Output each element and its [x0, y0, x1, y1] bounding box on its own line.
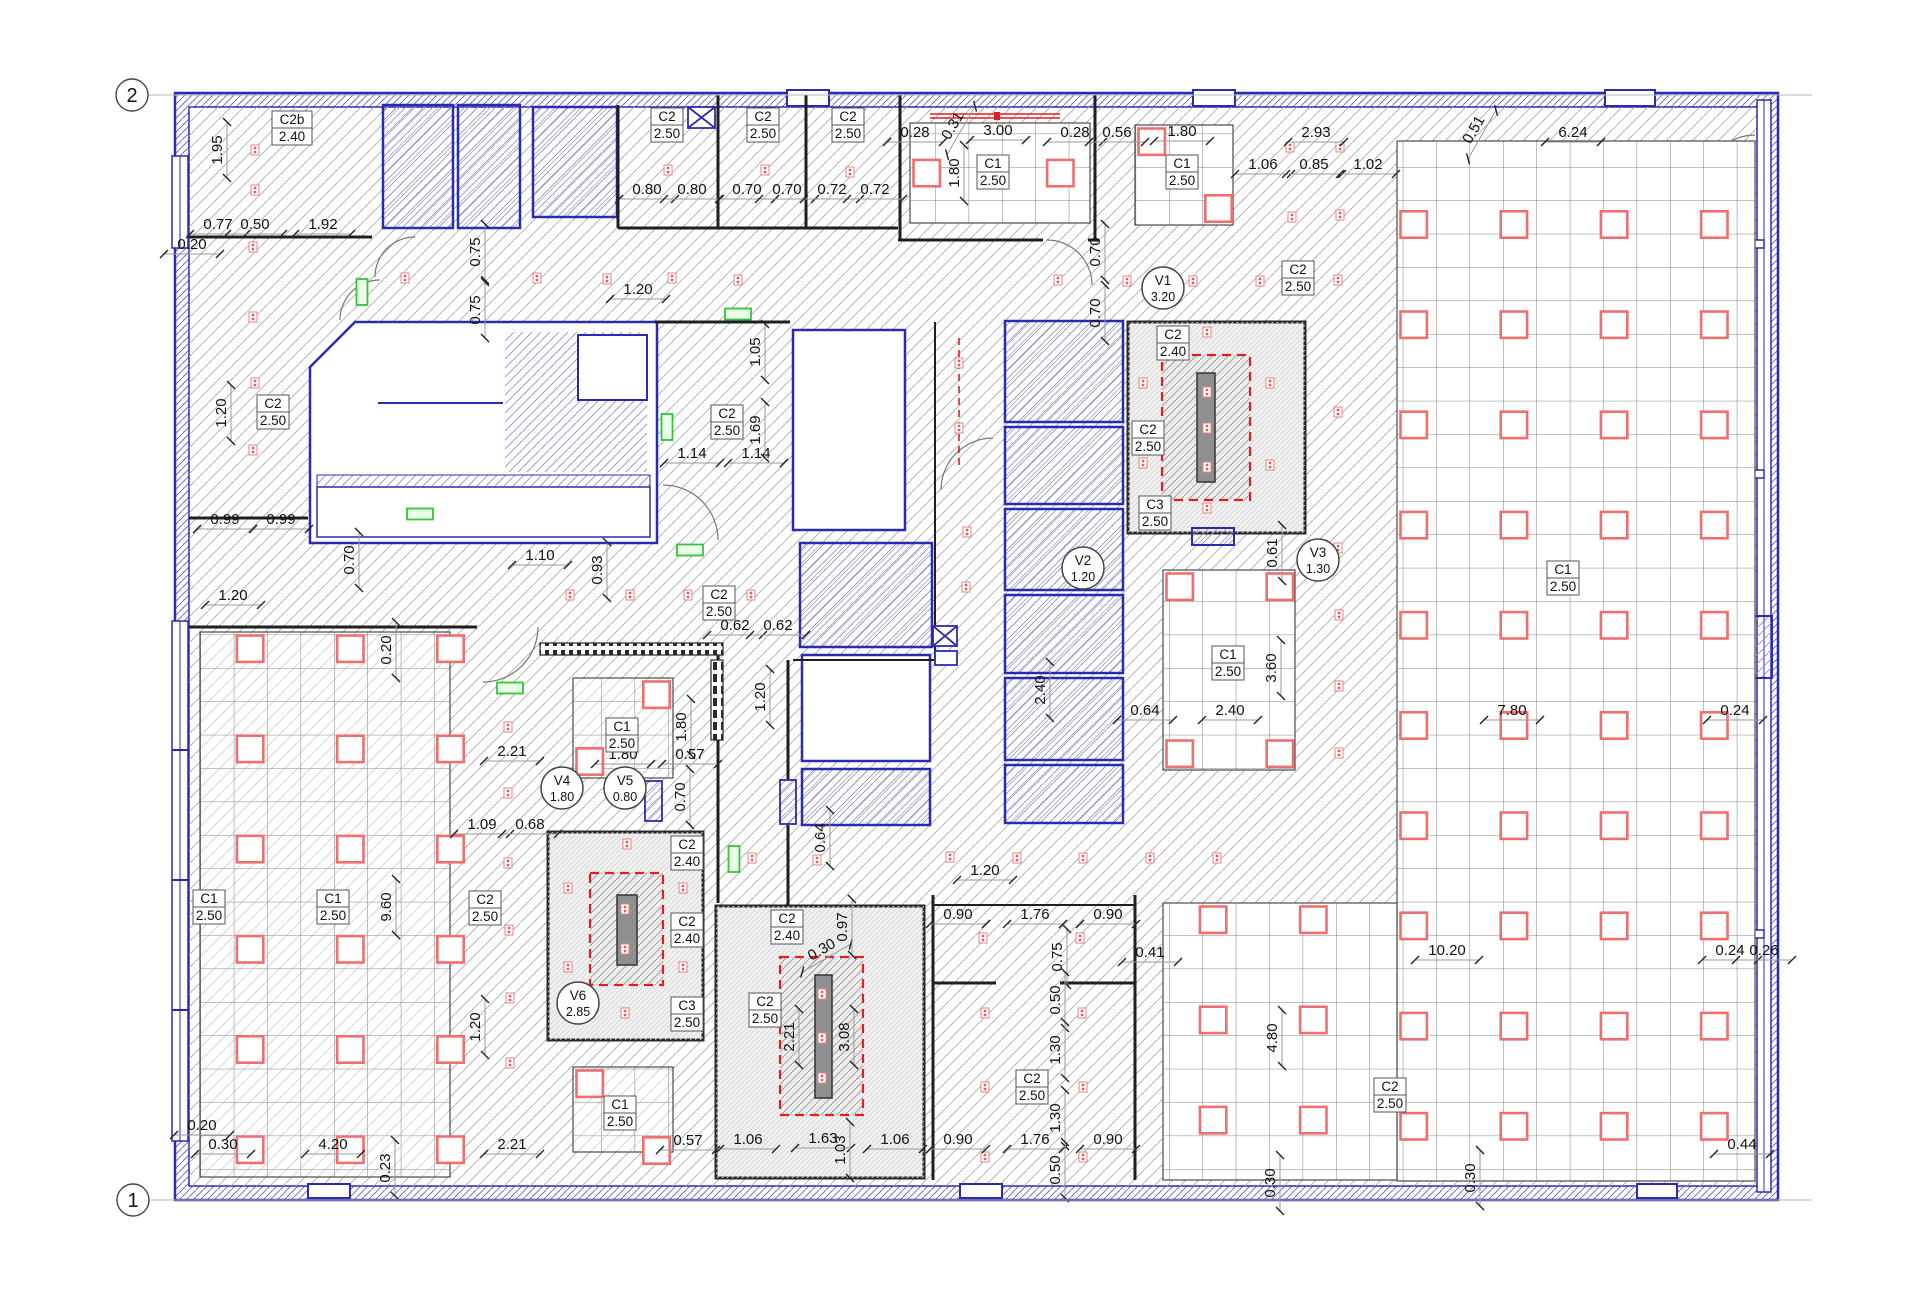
sprinkler-icon	[566, 590, 574, 600]
sprinkler-icon	[955, 358, 963, 368]
vent-label-code: V1	[1155, 273, 1172, 288]
light-fixture	[1701, 913, 1727, 939]
light-fixture	[1401, 512, 1427, 538]
ceiling-label: C12.50	[193, 890, 225, 924]
dimension-text: 4.80	[1264, 1023, 1281, 1052]
dimension-text: 0.26	[1749, 942, 1778, 959]
ceiling-label: C22.40	[671, 913, 703, 947]
ceiling-label-code: C2	[264, 396, 281, 411]
dimension-text: 1.10	[525, 547, 554, 564]
light-fixture	[1601, 1113, 1627, 1139]
vent-label-code: V6	[570, 988, 587, 1003]
light-fixture	[1167, 574, 1193, 600]
dimension-text: 10.20	[1428, 942, 1466, 959]
sprinkler-icon	[1146, 853, 1154, 863]
dimension-text: 0.24	[1720, 702, 1749, 719]
ceiling-label-height: 2.50	[1169, 173, 1195, 188]
light-fixture	[1501, 1113, 1527, 1139]
dimension-text: 1.30	[1047, 1035, 1064, 1064]
light-fixture	[643, 682, 669, 708]
window-left-top	[172, 156, 188, 248]
light-fixture	[1205, 195, 1231, 221]
ceiling-label-code: C2	[678, 837, 695, 852]
exit-light-icon	[357, 279, 368, 305]
light-fixture	[1300, 1107, 1326, 1133]
dimension-text: 0.90	[943, 906, 972, 923]
ceiling-label: C22.50	[1016, 1070, 1048, 1104]
ceiling-label: C22.50	[651, 108, 683, 142]
ceiling-label-code: C1	[324, 891, 341, 906]
sprinkler-icon	[1079, 1082, 1087, 1092]
light-fixture	[1200, 1107, 1226, 1133]
light-fixture	[237, 636, 263, 662]
ceiling-label-code: C2	[754, 109, 771, 124]
dimension-text: 3.08	[836, 1022, 853, 1051]
dimension-text: 0.57	[675, 746, 704, 763]
grid-ref-number: 2	[126, 85, 137, 107]
vent-label: V41.80	[541, 767, 583, 809]
sprinkler-icon	[1203, 462, 1211, 472]
ceiling-label-code: C1	[1219, 647, 1236, 662]
ceiling-label-height: 2.50	[654, 126, 680, 141]
sprinkler-icon	[1054, 275, 1062, 285]
vent-label: V31.30	[1297, 539, 1339, 581]
ceiling-label: C22.50	[703, 586, 735, 620]
ceiling-label: C22.50	[832, 108, 864, 142]
dimension-text: 4.20	[318, 1136, 347, 1153]
light-fixture	[437, 1137, 463, 1163]
dimension-text: 0.85	[1299, 156, 1328, 173]
dimension-text: 1.95	[209, 135, 226, 164]
light-fixture	[1701, 512, 1727, 538]
ceiling-label-height: 2.50	[674, 1015, 700, 1030]
light-fixture	[1701, 1113, 1727, 1139]
dimension-text: 2.21	[781, 1022, 798, 1051]
light-fixture	[337, 736, 363, 762]
light-fixture	[1401, 312, 1427, 338]
sprinkler-icon	[504, 858, 512, 868]
sprinkler-icon	[1076, 933, 1084, 943]
vent-label: V50.80	[604, 767, 646, 809]
light-fixture	[1300, 1007, 1326, 1033]
ceiling-label: C22.50	[747, 108, 779, 142]
sprinkler-icon	[962, 582, 970, 592]
light-fixture	[1601, 412, 1627, 438]
sprinkler-icon	[603, 274, 611, 284]
sprinkler-icon	[1335, 681, 1343, 691]
light-fixture	[577, 1071, 603, 1097]
sprinkler-icon	[761, 165, 769, 175]
ceiling-label-code: C2	[476, 892, 493, 907]
light-fixture	[1701, 1013, 1727, 1039]
dimension-text: 0.90	[1093, 906, 1122, 923]
sprinkler-icon	[621, 904, 629, 914]
floor-plan-drawing: 1.950.770.501.920.200.800.800.700.700.72…	[0, 0, 1920, 1295]
dimension-text: 1.06	[880, 1131, 909, 1148]
sprinkler-icon	[251, 185, 259, 195]
light-fixture	[1601, 913, 1627, 939]
dimension-text: 0.50	[1047, 985, 1064, 1014]
dimension-text: 0.30	[1262, 1168, 1279, 1197]
dimension-text: 1.92	[308, 216, 337, 233]
ceiling-label: C22.50	[257, 395, 289, 429]
ceiling-label-height: 2.50	[1135, 439, 1161, 454]
ceiling-label: C22.40	[1157, 326, 1189, 360]
dimension-text: 1.09	[467, 816, 496, 833]
dimension-text: 0.50	[1047, 1155, 1064, 1184]
ceiling-label-height: 2.40	[774, 928, 800, 943]
ceiling-label-height: 2.40	[674, 931, 700, 946]
dimension-text: 1.76	[1020, 906, 1049, 923]
light-fixture	[237, 1137, 263, 1163]
light-fixture	[1701, 813, 1727, 839]
light-fixture	[1701, 312, 1727, 338]
sprinkler-icon	[734, 275, 742, 285]
vent-label: V21.20	[1062, 547, 1104, 589]
light-fixture	[1601, 813, 1627, 839]
light-fixture	[1401, 412, 1427, 438]
light-fixture	[1501, 512, 1527, 538]
light-fixture	[1501, 412, 1527, 438]
dimension-text: 0.72	[860, 181, 889, 198]
dimension-text: 0.30	[208, 1136, 237, 1153]
sprinkler-icon	[1256, 276, 1264, 286]
sprinkler-icon	[504, 722, 512, 732]
dimension-text: 1.20	[752, 682, 769, 711]
light-fixture	[1601, 312, 1627, 338]
sprinkler-icon	[846, 167, 854, 177]
ceiling-label-code: C1	[984, 156, 1001, 171]
dimension-text: 3.60	[1263, 653, 1280, 682]
ceiling-label-height: 2.50	[706, 604, 732, 619]
light-fixture	[1601, 512, 1627, 538]
ceiling-label: C12.50	[1547, 561, 1579, 595]
floor-plan-stage: 1.950.770.501.920.200.800.800.700.700.72…	[0, 0, 1920, 1295]
dimension-text: 1.80	[673, 712, 690, 741]
ceiling-label: C2b2.40	[272, 111, 312, 145]
light-fixture	[1601, 1013, 1627, 1039]
dimension-text: 0.80	[677, 181, 706, 198]
sprinkler-icon	[1334, 407, 1342, 417]
vent-label-code: V3	[1310, 545, 1327, 560]
ceiling-label-code: C2	[756, 994, 773, 1009]
sprinkler-icon	[946, 852, 954, 862]
dimension-text: 0.64	[1130, 702, 1159, 719]
dimension-text: 0.23	[377, 1153, 394, 1182]
dimension-text: 0.64	[812, 823, 829, 852]
light-fixture	[1601, 712, 1627, 738]
dimension-text: 0.70	[1087, 237, 1104, 266]
ceiling-label-height: 2.50	[1285, 279, 1311, 294]
vent-label-value: 1.20	[1071, 570, 1095, 584]
light-fixture	[1300, 907, 1326, 933]
sprinkler-icon	[981, 1152, 989, 1162]
ceiling-label-height: 2.50	[260, 413, 286, 428]
ceiling-label-code: C1	[613, 719, 630, 734]
ceiling-label-code: C2	[778, 911, 795, 926]
sprinkler-icon	[679, 883, 687, 893]
ceiling-label-height: 2.50	[835, 126, 861, 141]
dimension-text: 0.62	[763, 617, 792, 634]
dimension-text: 1.80	[1167, 123, 1196, 140]
ceiling-label-height: 2.40	[674, 854, 700, 869]
ceiling-label: C12.50	[317, 890, 349, 924]
dimension-text: 0.97	[834, 912, 851, 941]
ceiling-label-code: C1	[200, 891, 217, 906]
ceiling-label-code: C1	[611, 1097, 628, 1112]
sprinkler-icon	[1335, 748, 1343, 758]
ceiling-label-code: C3	[1146, 497, 1163, 512]
ceiling-label: C12.50	[1166, 155, 1198, 189]
sprinkler-icon	[1335, 610, 1343, 620]
ceiling-label-height: 2.50	[980, 173, 1006, 188]
light-fixture	[1501, 312, 1527, 338]
vent-label-value: 3.20	[1151, 290, 1175, 304]
ceiling-label-height: 2.50	[1377, 1096, 1403, 1111]
ceiling-label-height: 2.50	[752, 1011, 778, 1026]
ceiling-label-height: 2.40	[1160, 344, 1186, 359]
light-fixture	[914, 160, 940, 186]
sprinkler-icon	[979, 933, 987, 943]
sprinkler-icon	[621, 1008, 629, 1018]
ceiling-label-code: C2	[1023, 1071, 1040, 1086]
dimension-text: 0.70	[341, 545, 358, 574]
dimension-text: 1.20	[213, 398, 230, 427]
sprinkler-icon	[1288, 212, 1296, 222]
sprinkler-icon	[1123, 276, 1131, 286]
dimension-text: 0.99	[210, 511, 239, 528]
sprinkler-icon	[818, 989, 826, 999]
ceiling-label: C22.50	[1374, 1078, 1406, 1112]
light-fixture	[337, 636, 363, 662]
dimension-text: 0.72	[817, 181, 846, 198]
dimension-text: 1.20	[970, 862, 999, 879]
dimension-text: 0.70	[732, 181, 761, 198]
sprinkler-icon	[1139, 458, 1147, 468]
dimension-text: 0.56	[1102, 124, 1131, 141]
ceiling-label-code: C2	[658, 109, 675, 124]
light-fixture	[237, 936, 263, 962]
exit-light-icon	[497, 683, 523, 694]
dimension-text: 6.24	[1558, 124, 1587, 141]
ceiling-label-height: 2.50	[472, 909, 498, 924]
light-fixture	[1701, 612, 1727, 638]
light-fixture	[437, 636, 463, 662]
dimension-text: 0.90	[943, 1131, 972, 1148]
dimension-text: 0.20	[378, 635, 395, 664]
light-fixture	[437, 836, 463, 862]
vent-label-value: 0.80	[613, 790, 637, 804]
sprinkler-icon	[251, 145, 259, 155]
dimension-text: 0.20	[187, 1117, 216, 1134]
open-void-structure	[310, 322, 657, 543]
sprinkler-icon	[981, 1008, 989, 1018]
light-fixture	[1401, 1113, 1427, 1139]
dimension-text: 1.20	[467, 1012, 484, 1041]
light-fixture	[1701, 412, 1727, 438]
ceiling-label-height: 2.50	[1019, 1088, 1045, 1103]
ceiling-label-code: C2b	[280, 112, 305, 127]
dimension-text: 2.21	[497, 1136, 526, 1153]
ceiling-label-height: 2.50	[714, 423, 740, 438]
ceiling-label: C12.50	[1212, 646, 1244, 680]
ceiling-label-height: 2.40	[279, 129, 305, 144]
ceiling-label-height: 2.50	[750, 126, 776, 141]
sprinkler-icon	[664, 165, 672, 175]
dimension-text: 0.93	[589, 555, 606, 584]
light-fixture	[1601, 211, 1627, 237]
sprinkler-icon	[963, 527, 971, 537]
dimension-text: 1.02	[1353, 156, 1382, 173]
light-fixture	[1267, 574, 1293, 600]
ceiling-label: C22.40	[671, 836, 703, 870]
ceiling-label-height: 2.50	[196, 908, 222, 923]
sprinkler-icon	[621, 944, 629, 954]
ceiling-label-height: 2.50	[1550, 579, 1576, 594]
light-fixture	[1167, 741, 1193, 767]
light-fixture	[577, 748, 603, 774]
sprinkler-icon	[1203, 503, 1211, 513]
ceiling-label-height: 2.50	[607, 1114, 633, 1129]
ceiling-label: C12.50	[977, 155, 1009, 189]
light-fixture	[1501, 813, 1527, 839]
sprinkler-icon	[818, 1073, 826, 1083]
dimension-text: 0.44	[1727, 1136, 1756, 1153]
dimension-text: 0.80	[632, 181, 661, 198]
light-fixture	[1401, 813, 1427, 839]
exit-light-icon	[729, 846, 740, 872]
sprinkler-icon	[1266, 460, 1274, 470]
sprinkler-icon	[1213, 853, 1221, 863]
sprinkler-icon	[818, 1033, 826, 1043]
dimension-text: 0.75	[467, 237, 484, 266]
vent-label-code: V4	[554, 773, 571, 788]
sprinkler-icon	[1334, 275, 1342, 285]
ceiling-label: C22.50	[749, 993, 781, 1027]
sprinkler-icon	[1189, 276, 1197, 286]
light-fixture	[1267, 741, 1293, 767]
dimension-text: 1.80	[946, 158, 963, 187]
exit-light-icon	[662, 414, 673, 440]
light-fixture	[337, 836, 363, 862]
sprinkler-icon	[747, 590, 755, 600]
ceiling-label: C32.50	[1139, 496, 1171, 530]
light-fixture	[437, 736, 463, 762]
dimension-text: 0.75	[1049, 942, 1066, 971]
sprinkler-icon	[249, 242, 257, 252]
sprinkler-icon	[249, 312, 257, 322]
light-fixture	[1701, 211, 1727, 237]
sprinkler-icon	[623, 839, 631, 849]
vent-label-code: V5	[617, 773, 634, 788]
light-fixture	[437, 936, 463, 962]
grid-ref-number: 1	[127, 1190, 138, 1212]
dimension-text: 1.20	[623, 281, 652, 298]
sprinkler-icon	[1266, 378, 1274, 388]
dimension-text: 0.70	[772, 181, 801, 198]
sprinkler-icon	[1336, 210, 1344, 220]
light-fixture	[1200, 1007, 1226, 1033]
dimension-text: 2.21	[497, 743, 526, 760]
ceiling-label: C22.40	[771, 910, 803, 944]
sprinkler-icon	[564, 883, 572, 893]
ceiling-label-code: C2	[678, 914, 695, 929]
light-fixture	[1401, 612, 1427, 638]
exit-light-icon	[725, 309, 751, 320]
ceiling-label-code: C2	[1381, 1079, 1398, 1094]
dimension-text: 1.14	[677, 445, 706, 462]
ceiling-label-code: C2	[1289, 262, 1306, 277]
dimension-text: 0.30	[1462, 1163, 1479, 1192]
ceiling-label-height: 2.50	[1215, 664, 1241, 679]
vent-label: V62.85	[557, 982, 599, 1024]
sprinkler-icon	[1203, 387, 1211, 397]
sprinkler-icon	[564, 962, 572, 972]
ceiling-label: C12.50	[604, 1096, 636, 1130]
sprinkler-icon	[955, 423, 963, 433]
vent-label-code: V2	[1075, 553, 1092, 568]
ceiling-label-height: 2.50	[1142, 514, 1168, 529]
ceiling-label: C22.50	[1132, 421, 1164, 455]
sprinkler-icon	[504, 788, 512, 798]
sprinkler-icon	[1203, 423, 1211, 433]
light-fixture	[1601, 612, 1627, 638]
sprinkler-icon	[505, 925, 513, 935]
dimension-text: 1.69	[747, 415, 764, 444]
light-fixture	[1401, 712, 1427, 738]
sprinkler-icon	[249, 445, 257, 455]
ceiling-label-height: 2.50	[320, 908, 346, 923]
dimension-text: 1.06	[733, 1131, 762, 1148]
sprinkler-icon	[506, 1058, 514, 1068]
ceiling-label: C32.50	[671, 997, 703, 1031]
ceiling-label: C22.50	[711, 405, 743, 439]
ceiling-label-code: C1	[1173, 156, 1190, 171]
exit-light-icon	[407, 509, 433, 520]
dimension-text: 0.20	[177, 236, 206, 253]
dimension-text: 0.57	[673, 1132, 702, 1149]
ceiling-label: C22.50	[469, 891, 501, 925]
light-fixture	[1200, 907, 1226, 933]
light-fixture	[1047, 160, 1073, 186]
dimension-text: 1.76	[1020, 1131, 1049, 1148]
dimension-text: 0.77	[203, 216, 232, 233]
vent-label-value: 1.80	[550, 790, 574, 804]
sprinkler-icon	[684, 590, 692, 600]
dimension-text: 2.40	[1032, 675, 1049, 704]
dimension-text: 0.28	[900, 124, 929, 141]
dimension-text: 0.41	[1135, 944, 1164, 961]
sprinkler-icon	[1013, 853, 1021, 863]
dimension-text: 9.60	[378, 892, 395, 921]
light-fixture	[237, 836, 263, 862]
sprinkler-icon	[1203, 327, 1211, 337]
vent-label-value: 2.85	[566, 1005, 590, 1019]
dimension-text: 0.61	[1264, 538, 1281, 567]
ceiling-label-code: C2	[710, 587, 727, 602]
exit-light-icon	[677, 545, 703, 556]
light-fixture	[1401, 913, 1427, 939]
sprinkler-icon	[813, 855, 821, 865]
window-left-bottom	[172, 621, 188, 1141]
sprinkler-icon	[981, 1082, 989, 1092]
dimension-text: 2.40	[1215, 702, 1244, 719]
ceiling-label-code: C2	[1164, 327, 1181, 342]
ceiling-label: C22.50	[1282, 261, 1314, 295]
light-fixture	[1401, 211, 1427, 237]
light-fixture	[1401, 1013, 1427, 1039]
light-fixture	[437, 1036, 463, 1062]
